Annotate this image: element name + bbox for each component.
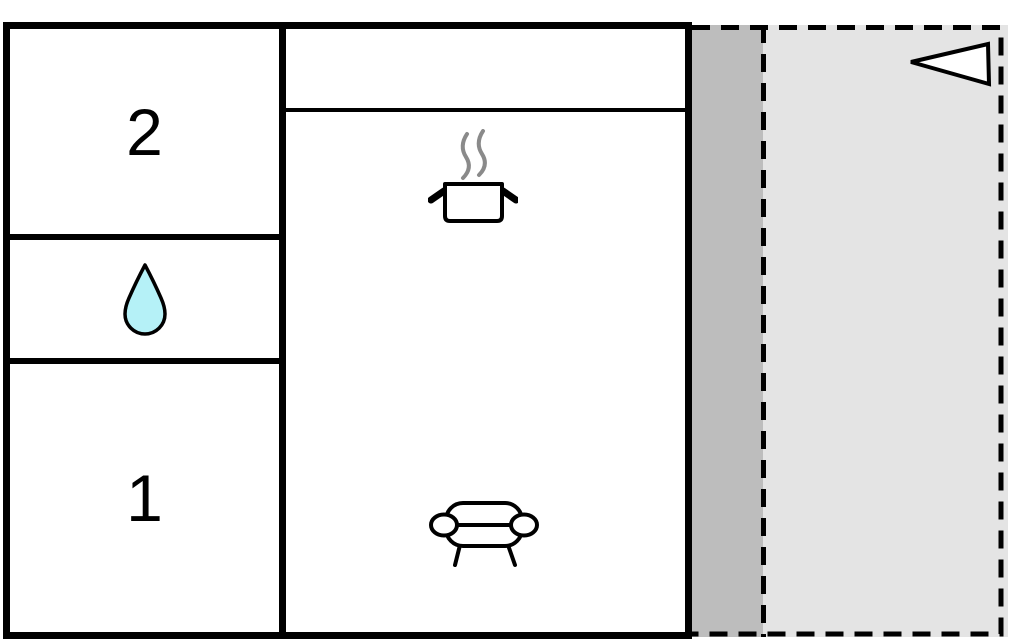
terrace-dark-strip <box>692 25 763 637</box>
room-2: 2 <box>10 29 279 234</box>
cooking-pot-icon <box>428 129 518 225</box>
bathroom-room <box>10 240 279 358</box>
steam-icon <box>463 131 485 178</box>
left-pointing-triangle-icon <box>908 41 992 87</box>
hallway-area <box>286 29 685 108</box>
sofa-icon <box>429 499 539 569</box>
room-1-label: 1 <box>126 465 163 531</box>
room-1: 1 <box>10 364 279 632</box>
water-drop-icon <box>122 262 168 336</box>
room-2-label: 2 <box>126 99 163 165</box>
floor-plan-canvas: 2 1 <box>0 0 1024 643</box>
interior-wall-vertical <box>279 22 286 639</box>
